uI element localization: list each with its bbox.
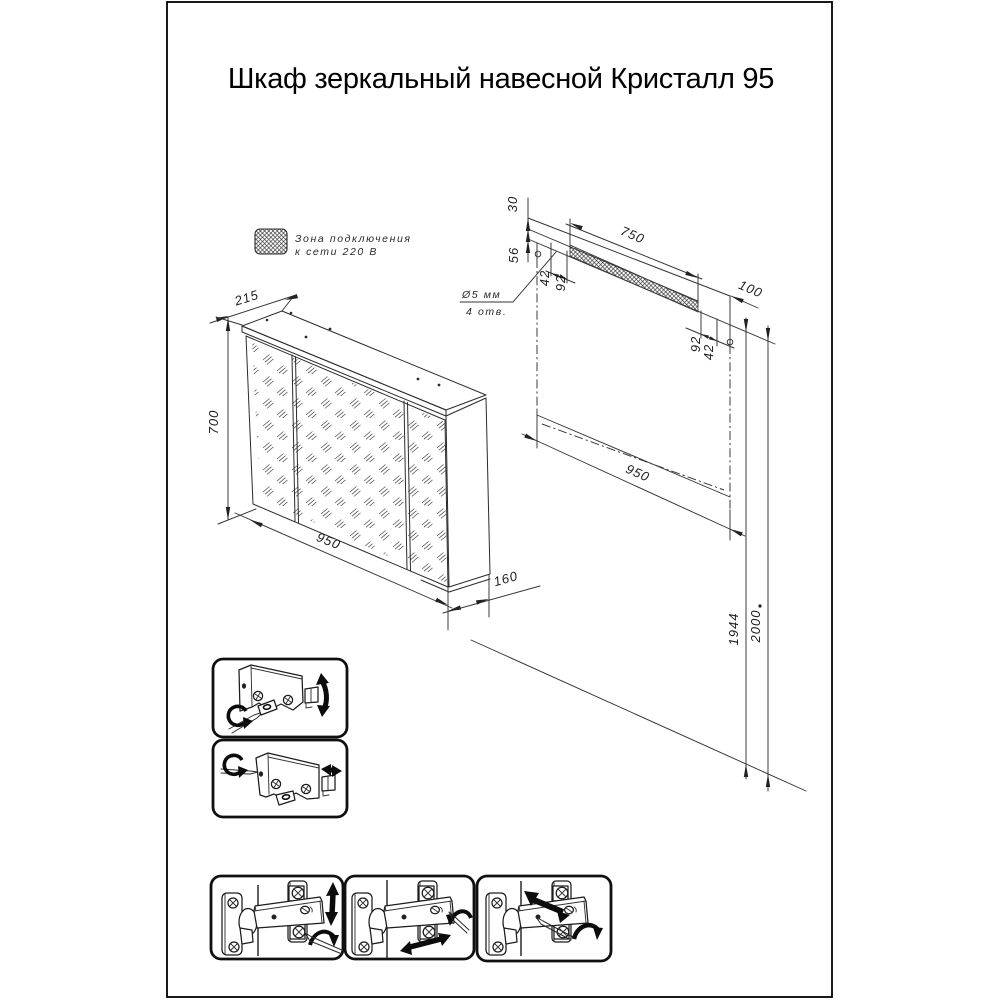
svg-text:30: 30 xyxy=(505,196,520,212)
svg-text:42: 42 xyxy=(537,270,552,286)
svg-text:к сети 220 В: к сети 220 В xyxy=(295,246,378,258)
svg-text:2000: 2000 xyxy=(748,610,763,644)
svg-text:Зона подключения: Зона подключения xyxy=(295,233,412,245)
svg-text:Ø5 мм: Ø5 мм xyxy=(461,289,501,301)
svg-text:56: 56 xyxy=(506,247,521,263)
svg-text:700: 700 xyxy=(206,410,221,435)
svg-text:1944: 1944 xyxy=(726,613,741,646)
svg-text:Шкаф зеркальный навесной Крист: Шкаф зеркальный навесной Кристалл 95 xyxy=(228,63,774,95)
svg-text:4 отв.: 4 отв. xyxy=(466,306,507,318)
svg-text:42: 42 xyxy=(701,344,716,360)
svg-text:92: 92 xyxy=(553,275,568,291)
